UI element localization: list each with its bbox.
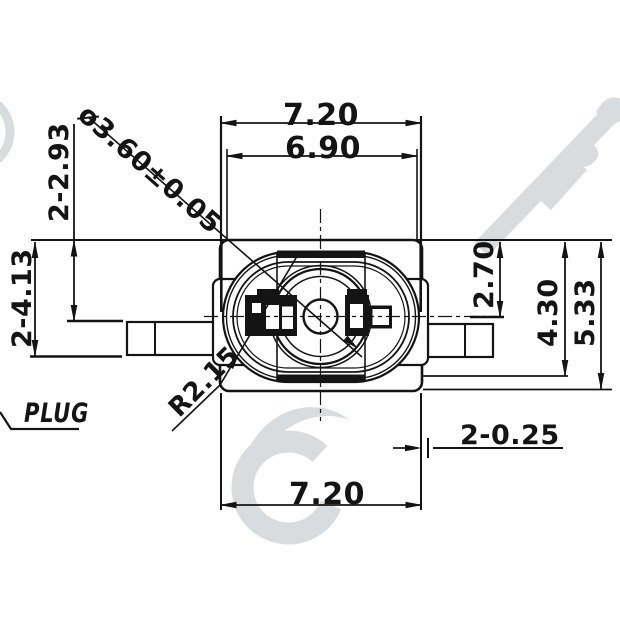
dim-bottom-width-text: 7.20 [289, 477, 365, 512]
dimension-left-lower [30, 242, 122, 357]
dim-top-outer-text: 7.20 [283, 98, 359, 133]
dim-edge-step-text: 2-0.25 [460, 420, 560, 451]
mounting-tab-right [428, 324, 493, 357]
dim-right-full-text: 5.33 [570, 278, 601, 347]
dim-right-mid-text: 4.30 [533, 278, 564, 347]
drawing-geometry [0, 0, 620, 620]
dim-top-inner-text: 6.90 [285, 131, 361, 166]
dim-left-lower-text: 2-4.13 [7, 248, 38, 348]
engineering-drawing-plug: 7.20 6.90 ø3.60±0.05 2-2.93 2-4.13 2.70 … [0, 0, 620, 620]
mounting-tab-left [127, 322, 214, 355]
watermark-stripe-1 [474, 101, 620, 256]
watermark-arc-left [0, 96, 10, 168]
dim-right-center-text: 2.70 [469, 240, 500, 309]
dim-left-upper-text: 2-2.93 [44, 122, 75, 222]
plug-label: PLUG [24, 398, 89, 429]
